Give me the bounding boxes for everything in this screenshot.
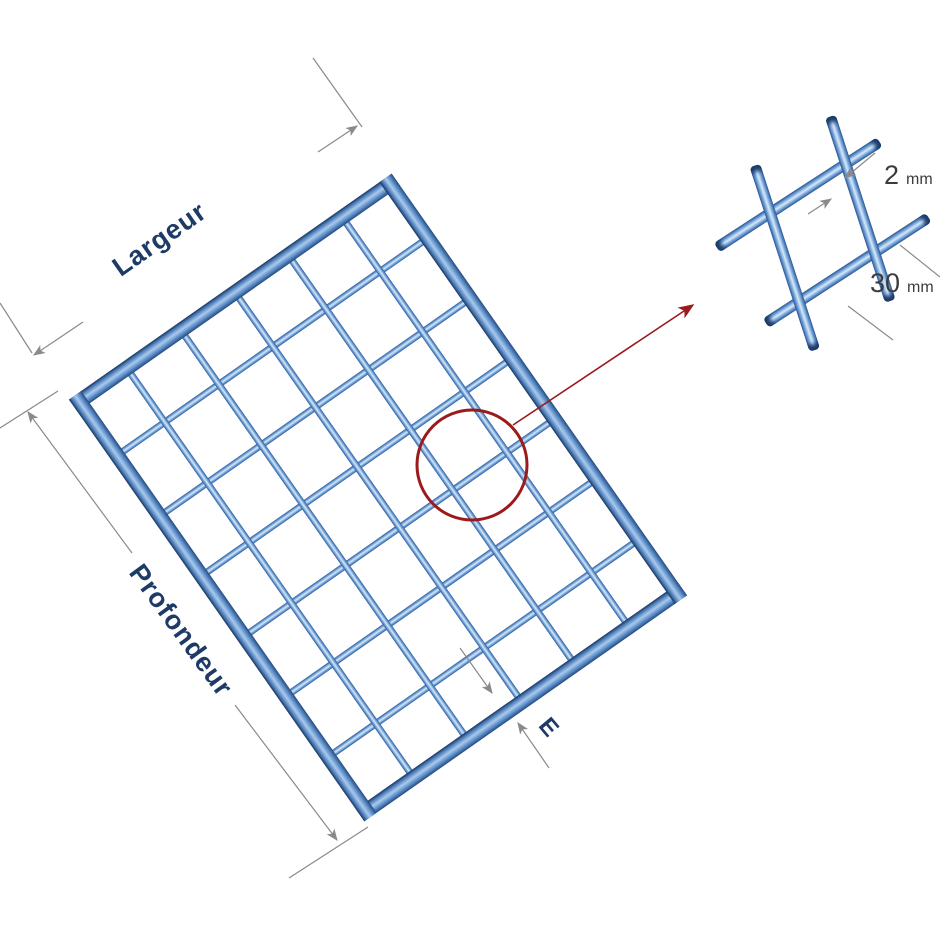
largeur-dim-arrow-left — [34, 322, 83, 355]
profondeur-extension-line-top — [0, 391, 58, 428]
largeur-extension-line-top — [313, 58, 362, 127]
profondeur-dim-line-lower — [235, 705, 337, 840]
profondeur-extension-line-bottom — [289, 827, 368, 878]
wire-diameter-unit: mm — [906, 171, 933, 189]
mesh-opening-leader-lower — [848, 306, 893, 340]
wire-diameter-value: 2 — [884, 160, 899, 191]
diagram-canvas: Largeur Profondeur E 2mm 30mm — [0, 0, 940, 940]
e-thickness-arrow-upper — [460, 648, 492, 693]
mesh-opening-value: 30 — [870, 268, 900, 299]
callout-arrow — [513, 305, 693, 425]
largeur-dim-arrow-top — [318, 126, 357, 152]
mesh-opening-unit: mm — [907, 279, 934, 297]
highlight-circle — [417, 410, 527, 520]
wire-diameter-annotation: 2mm — [884, 160, 933, 191]
annotation-overlay — [0, 0, 940, 940]
wire-diameter-leader-upper — [845, 153, 875, 178]
profondeur-dim-line-upper — [28, 412, 132, 553]
mesh-opening-annotation: 30mm — [870, 268, 934, 299]
largeur-extension-line-left — [0, 303, 32, 353]
wire-diameter-leader-lower — [808, 199, 831, 214]
